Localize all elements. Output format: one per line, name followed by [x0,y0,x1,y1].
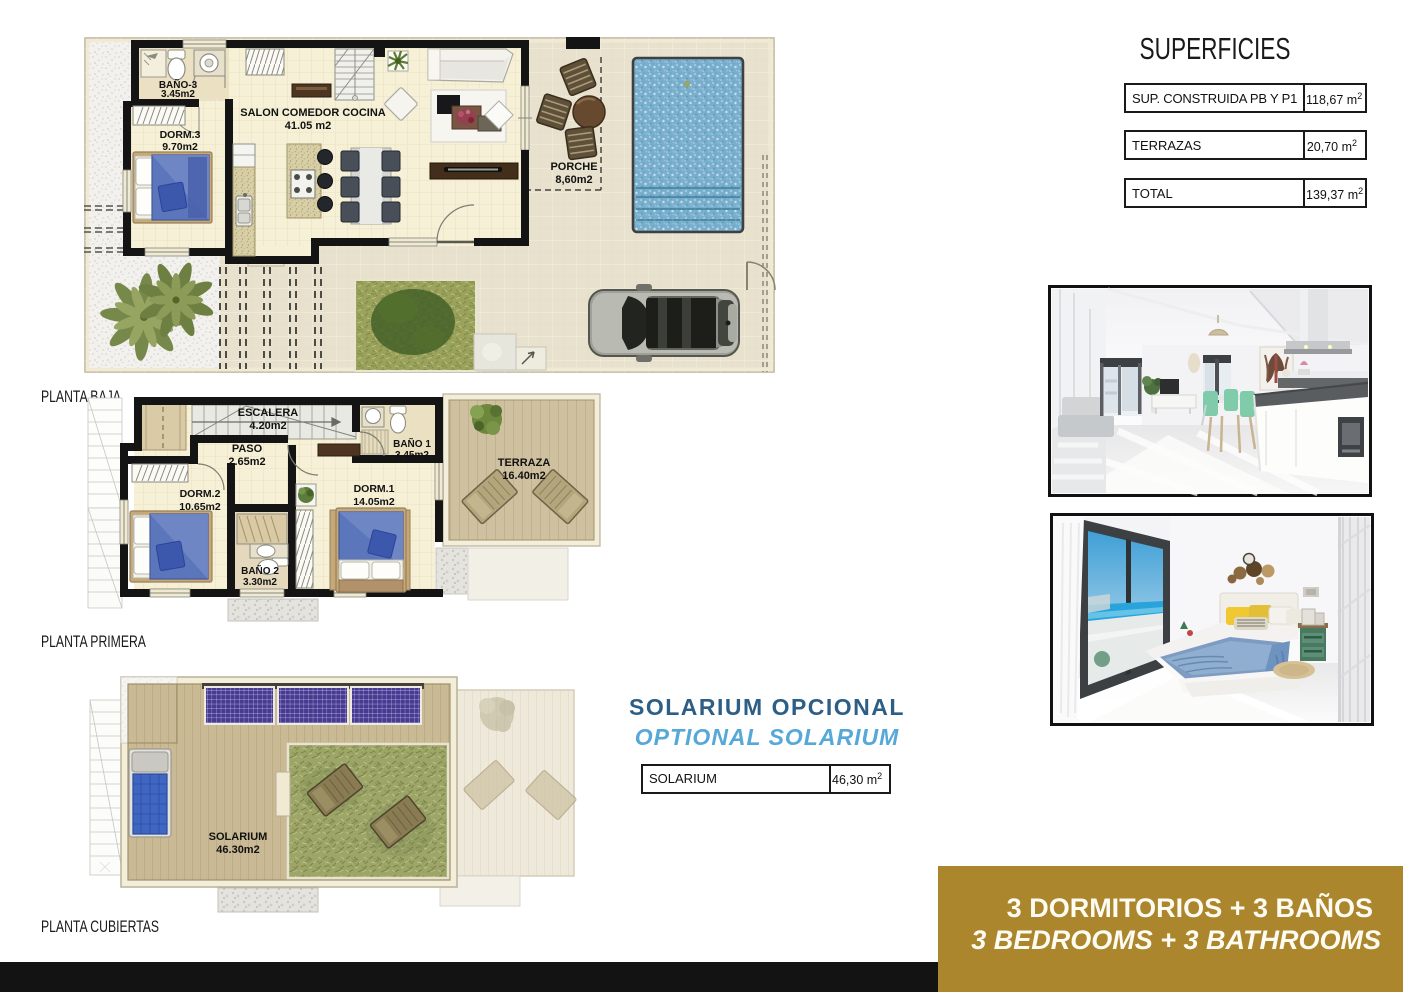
svg-text:2.65m2: 2.65m2 [228,456,265,468]
svg-text:DORM.1: DORM.1 [354,483,395,495]
svg-text:PASO: PASO [232,443,263,455]
svg-text:14.05m2: 14.05m2 [353,496,395,508]
svg-text:PORCHE: PORCHE [550,161,597,173]
svg-text:8,60m2: 8,60m2 [555,174,592,186]
svg-text:16.40m2: 16.40m2 [502,470,545,482]
svg-text:TERRAZA: TERRAZA [498,457,551,469]
svg-text:SOLARIUM: SOLARIUM [209,831,268,843]
svg-text:SALON COMEDOR COCINA: SALON COMEDOR COCINA [240,107,386,119]
svg-text:BAÑO 2: BAÑO 2 [241,564,279,577]
svg-text:3.45m2: 3.45m2 [161,89,195,100]
svg-text:ESCALERA: ESCALERA [238,407,299,419]
svg-text:46.30m2: 46.30m2 [216,844,259,856]
svg-text:9.70m2: 9.70m2 [162,141,198,153]
svg-text:BAÑO 1: BAÑO 1 [393,437,431,450]
svg-text:41.05 m2: 41.05 m2 [285,120,331,132]
svg-text:DORM.3: DORM.3 [160,129,201,141]
svg-text:3.30m2: 3.30m2 [243,577,277,588]
svg-text:DORM.2: DORM.2 [180,488,221,500]
svg-text:4.20m2: 4.20m2 [249,420,286,432]
svg-text:3.45m2: 3.45m2 [395,450,429,461]
